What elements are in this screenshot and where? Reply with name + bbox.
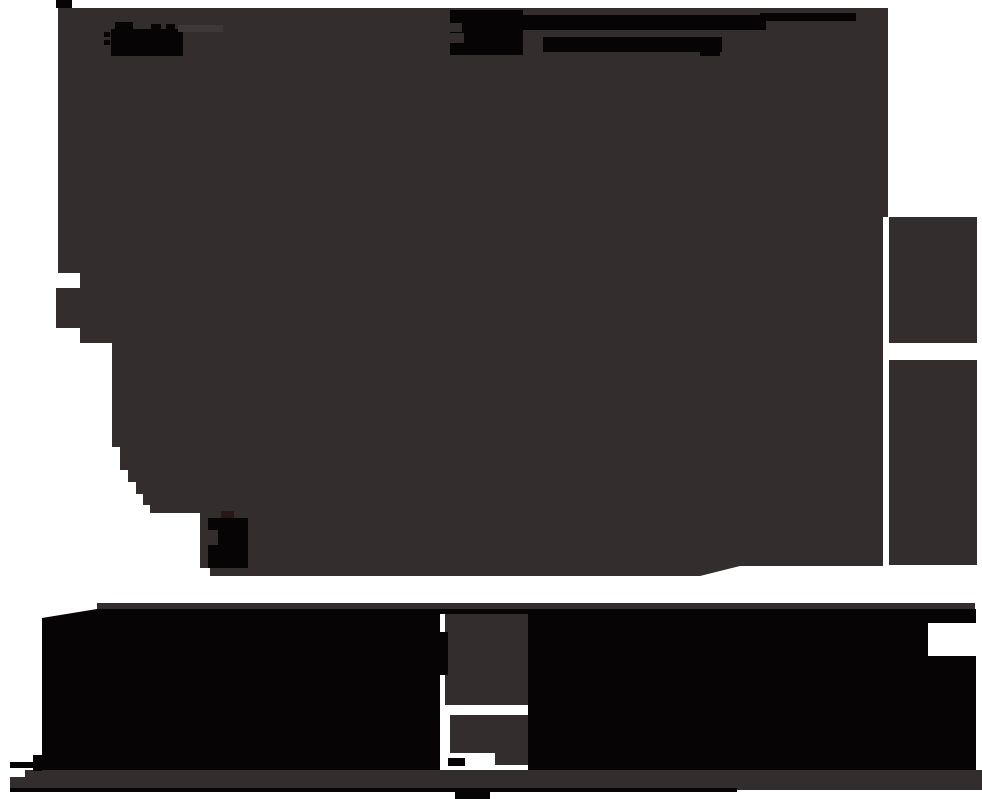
nav-smear-1 <box>522 15 766 30</box>
logo-smear-bump-1 <box>115 22 133 30</box>
nav-smear-4 <box>700 49 720 56</box>
logo-smear-dash-1 <box>104 32 110 37</box>
glyph-blob-bump <box>221 511 234 518</box>
pillar-upper <box>445 614 528 705</box>
pillar-edge-mark <box>440 632 448 675</box>
bottom-center-blob <box>455 790 490 799</box>
screenshot-canvas <box>0 0 982 799</box>
logo-smear-bump-2 <box>151 24 161 30</box>
nav-smear-blob-notch-2 <box>450 33 464 43</box>
underline-rule <box>10 788 737 792</box>
nav-smear-3 <box>760 13 856 21</box>
top-left-corner-nub <box>56 0 72 8</box>
lower-strip <box>97 603 975 610</box>
main-dark-mass <box>56 8 888 576</box>
pillar-extension <box>495 750 528 765</box>
paragraph-band <box>10 770 982 790</box>
nav-smear-blob <box>450 10 523 55</box>
right-panel-lower <box>889 360 977 565</box>
pillar-dash <box>448 758 465 766</box>
bottom-left-nub <box>33 755 42 771</box>
logo-smear-body <box>111 29 183 56</box>
lower-mass-notch <box>928 623 976 656</box>
pillar-lower <box>450 715 528 753</box>
logo-smear-dash-2 <box>104 40 110 45</box>
logo-highlight-bar <box>178 25 223 32</box>
nav-smear-blob-notch-1 <box>450 23 462 32</box>
screenshot-page <box>0 0 982 799</box>
logo-smear-bump-3 <box>166 24 175 30</box>
glyph-blob-notch <box>208 530 218 545</box>
nav-smear-2 <box>543 37 722 52</box>
right-panel-upper <box>889 217 977 343</box>
